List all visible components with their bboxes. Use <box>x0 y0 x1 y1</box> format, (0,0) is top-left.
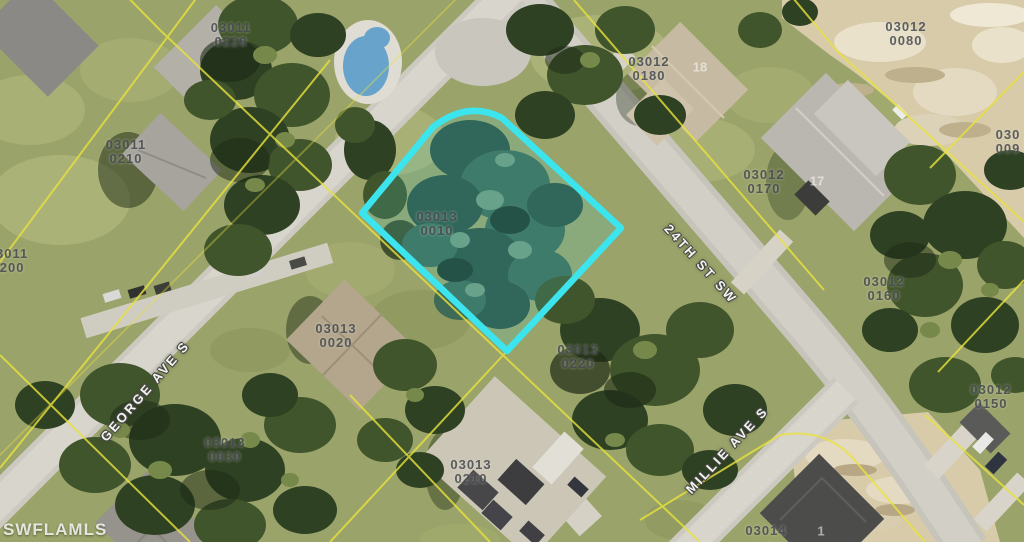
watermark: SWFLAMLS <box>3 520 107 540</box>
aerial-map-view: 0301102200301102100301102000301200800301… <box>0 0 1024 542</box>
aerial-photo <box>0 0 1024 542</box>
